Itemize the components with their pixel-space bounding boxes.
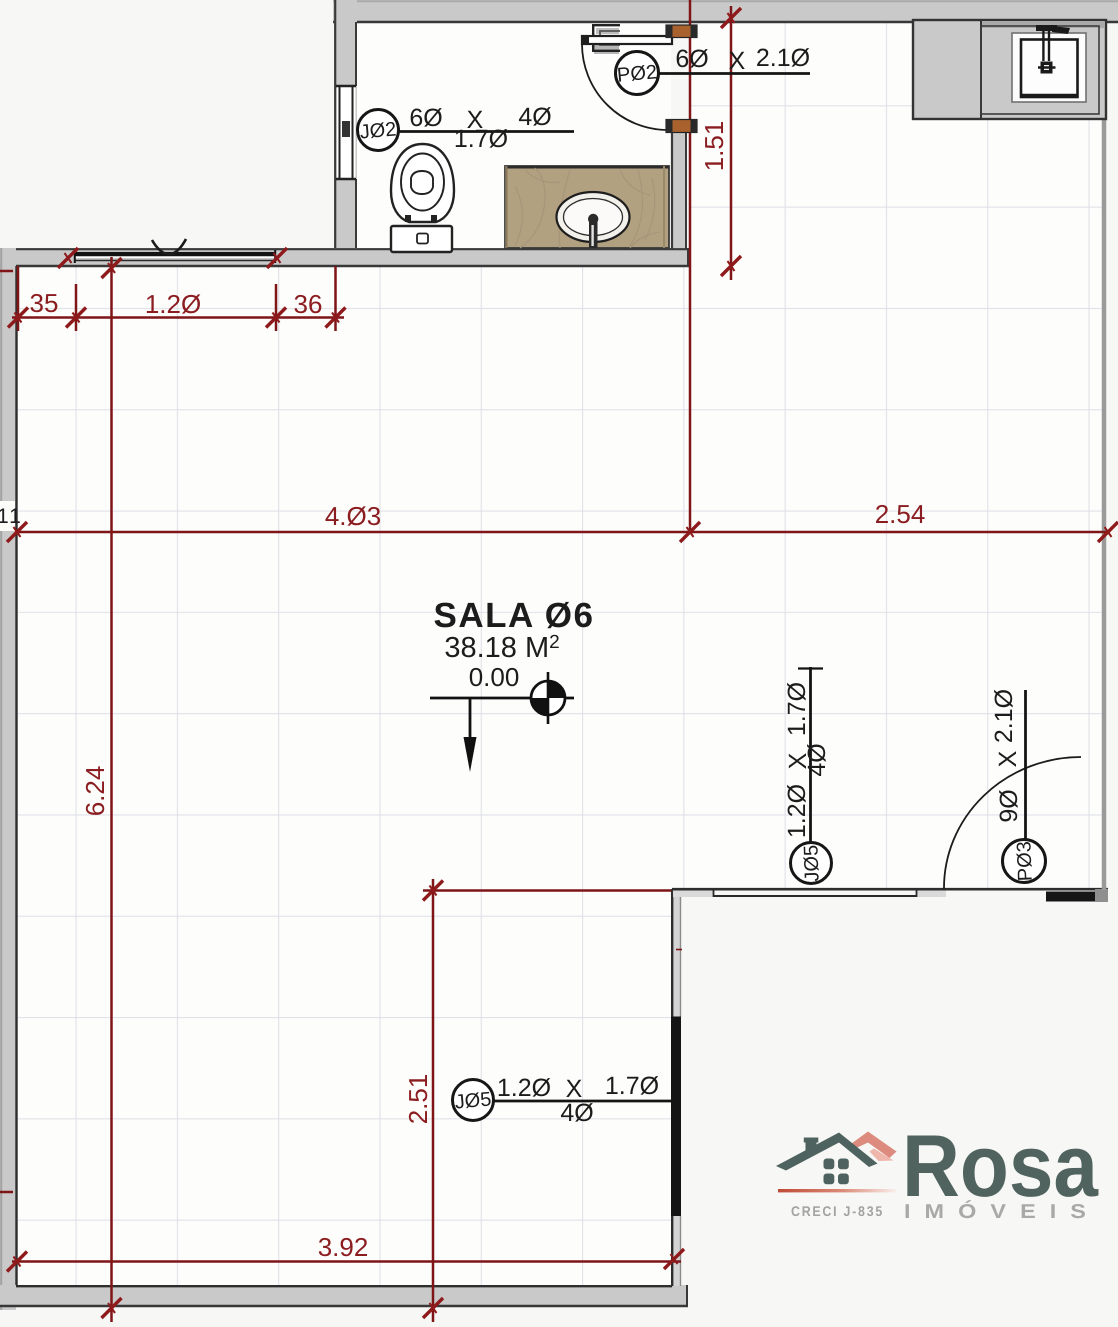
svg-text:4.Ø3: 4.Ø3: [325, 501, 381, 531]
svg-text:6Ø: 6Ø: [675, 45, 708, 73]
svg-text:1.51: 1.51: [699, 121, 729, 172]
svg-text:1.2Ø: 1.2Ø: [783, 784, 811, 838]
svg-text:0.00: 0.00: [469, 662, 520, 692]
svg-text:IMÓVEIS: IMÓVEIS: [904, 1200, 1100, 1223]
svg-text:1.7Ø: 1.7Ø: [454, 125, 508, 153]
svg-text:PØ3: PØ3: [1013, 841, 1036, 882]
svg-text:1.2Ø: 1.2Ø: [145, 289, 201, 319]
svg-text:3.92: 3.92: [318, 1232, 369, 1262]
svg-text:36: 36: [294, 289, 323, 319]
svg-text:1.7Ø: 1.7Ø: [605, 1072, 659, 1100]
svg-text:SALA Ø6: SALA Ø6: [434, 596, 595, 635]
svg-text:2.1Ø: 2.1Ø: [990, 689, 1018, 743]
svg-text:X: X: [729, 47, 746, 75]
svg-text:9Ø: 9Ø: [995, 789, 1023, 822]
svg-text:4Ø: 4Ø: [560, 1099, 593, 1127]
svg-text:4Ø: 4Ø: [803, 743, 831, 776]
svg-text:6.24: 6.24: [80, 766, 110, 817]
svg-text:4Ø: 4Ø: [518, 103, 551, 131]
svg-text:6Ø: 6Ø: [409, 104, 442, 132]
svg-text:1.2Ø: 1.2Ø: [497, 1074, 551, 1102]
svg-text:CRECI J-835: CRECI J-835: [791, 1203, 884, 1219]
svg-text:JØ2: JØ2: [359, 118, 397, 143]
svg-text:2.51: 2.51: [403, 1074, 433, 1125]
svg-text:2.1Ø: 2.1Ø: [756, 44, 810, 72]
svg-text:35: 35: [30, 288, 59, 318]
svg-text:JØ5: JØ5: [454, 1088, 492, 1113]
svg-text:PØ2: PØ2: [616, 61, 658, 86]
svg-text:2.54: 2.54: [875, 499, 926, 529]
svg-text:1.7Ø: 1.7Ø: [783, 682, 811, 736]
svg-text:JØ5: JØ5: [800, 844, 823, 881]
svg-text:X: X: [994, 750, 1022, 767]
svg-text:38.18 M2: 38.18 M2: [444, 632, 559, 664]
svg-text:11: 11: [0, 505, 23, 528]
